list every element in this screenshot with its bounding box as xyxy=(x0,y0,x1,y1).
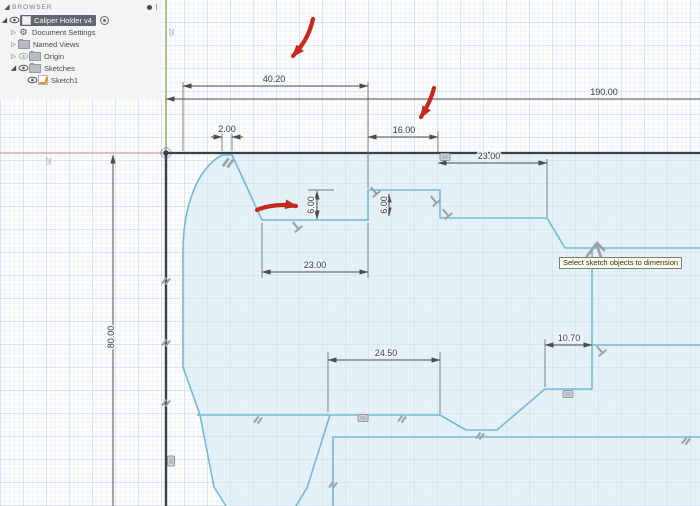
sketch-icon xyxy=(38,75,48,85)
dim-text-6-b[interactable]: 6.00 xyxy=(379,196,389,214)
dim-text-24-50[interactable]: 24.50 xyxy=(375,348,398,358)
item-label: Sketches xyxy=(44,64,75,73)
expand-caret-icon[interactable]: ▷ xyxy=(9,29,18,36)
expand-caret-icon[interactable]: ▷ xyxy=(9,41,18,48)
component-label: Caliper Holder v4 xyxy=(34,16,92,25)
browser-item-origin[interactable]: ▷ Origin xyxy=(0,50,162,62)
dim-text-10-70[interactable]: 10.70 xyxy=(558,333,581,343)
selected-item-highlight[interactable]: Caliper Holder v4 xyxy=(20,15,96,26)
gear-icon: ⚙ xyxy=(18,28,29,37)
expand-caret-icon[interactable]: ▷ xyxy=(9,53,18,60)
red-arrow-top xyxy=(293,19,313,56)
component-cube-icon xyxy=(22,16,31,25)
activate-component-radio[interactable] xyxy=(100,16,109,25)
dim-text-6-a[interactable]: 6.00 xyxy=(306,196,316,214)
browser-item-document-settings[interactable]: ▷ ⚙ Document Settings xyxy=(0,26,162,38)
folder-icon xyxy=(29,64,41,73)
red-arrow-middle xyxy=(421,88,434,117)
item-label: Sketch1 xyxy=(51,76,78,85)
dim-text-2[interactable]: 2.00 xyxy=(218,124,236,134)
dim-text-80[interactable]: 80.00 xyxy=(106,326,116,349)
browser-panel: ◢ BROWSER ◢ Caliper Holder v4 ▷ ⚙ Docume… xyxy=(0,0,162,99)
fix-constraint-icon xyxy=(168,456,175,466)
expand-caret-icon[interactable]: ◢ xyxy=(9,64,18,72)
folder-icon xyxy=(29,52,41,61)
fix-constraint-icon xyxy=(358,415,368,422)
grid-label-left: 25 xyxy=(44,157,51,165)
visibility-eye-icon[interactable] xyxy=(9,16,20,24)
browser-title: BROWSER xyxy=(12,4,53,11)
dim-text-23-bot[interactable]: 23.00 xyxy=(304,260,327,270)
fix-constraint-icon xyxy=(440,154,450,161)
dim-text-16[interactable]: 16.00 xyxy=(393,125,416,135)
browser-options-dot-icon[interactable] xyxy=(147,5,152,10)
fusion-sketch-canvas: 40.20 190.00 2.00 16.00 23.00 6.00 6.00 … xyxy=(0,0,700,506)
folder-icon xyxy=(18,40,30,49)
visibility-eye-icon[interactable] xyxy=(18,52,29,60)
browser-item-root-component[interactable]: ◢ Caliper Holder v4 xyxy=(0,14,162,26)
item-label: Document Settings xyxy=(32,28,95,37)
browser-item-named-views[interactable]: ▷ Named Views xyxy=(0,38,162,50)
item-label: Origin xyxy=(44,52,64,61)
visibility-eye-icon[interactable] xyxy=(27,76,38,84)
visibility-eye-icon[interactable] xyxy=(18,64,29,72)
grid-label-top: 25 xyxy=(167,28,174,36)
browser-header: ◢ BROWSER xyxy=(0,0,162,14)
dim-text-190[interactable]: 190.00 xyxy=(590,87,618,97)
browser-resize-handle-icon[interactable] xyxy=(156,4,157,10)
browser-collapse-caret-icon[interactable]: ◢ xyxy=(3,3,12,11)
cursor-tooltip: Select sketch objects to dimension xyxy=(559,257,682,269)
dim-text-23-top[interactable]: 23.00 xyxy=(478,151,501,161)
browser-item-sketches[interactable]: ◢ Sketches xyxy=(0,62,162,74)
expand-caret-icon[interactable]: ◢ xyxy=(0,16,9,24)
fix-constraint-icon xyxy=(563,391,573,398)
browser-item-sketch1[interactable]: Sketch1 xyxy=(0,74,162,86)
item-label: Named Views xyxy=(33,40,79,49)
dim-text-40-20[interactable]: 40.20 xyxy=(263,74,286,84)
